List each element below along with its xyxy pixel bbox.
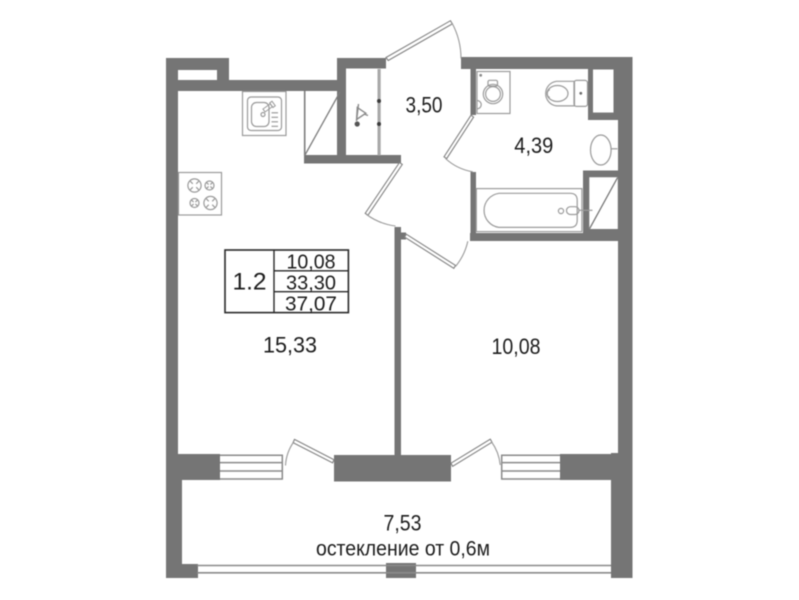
svg-text:1.2: 1.2 xyxy=(232,269,266,296)
svg-text:7,53: 7,53 xyxy=(384,511,422,536)
svg-text:33,30: 33,30 xyxy=(286,272,336,294)
svg-text:остекление от 0,6м: остекление от 0,6м xyxy=(316,537,490,560)
svg-text:15,33: 15,33 xyxy=(263,332,317,357)
svg-text:10,08: 10,08 xyxy=(492,334,541,359)
svg-text:3,50: 3,50 xyxy=(406,93,443,118)
svg-text:10,08: 10,08 xyxy=(287,251,336,273)
svg-text:37,07: 37,07 xyxy=(285,293,337,315)
svg-text:4,39: 4,39 xyxy=(514,133,553,158)
